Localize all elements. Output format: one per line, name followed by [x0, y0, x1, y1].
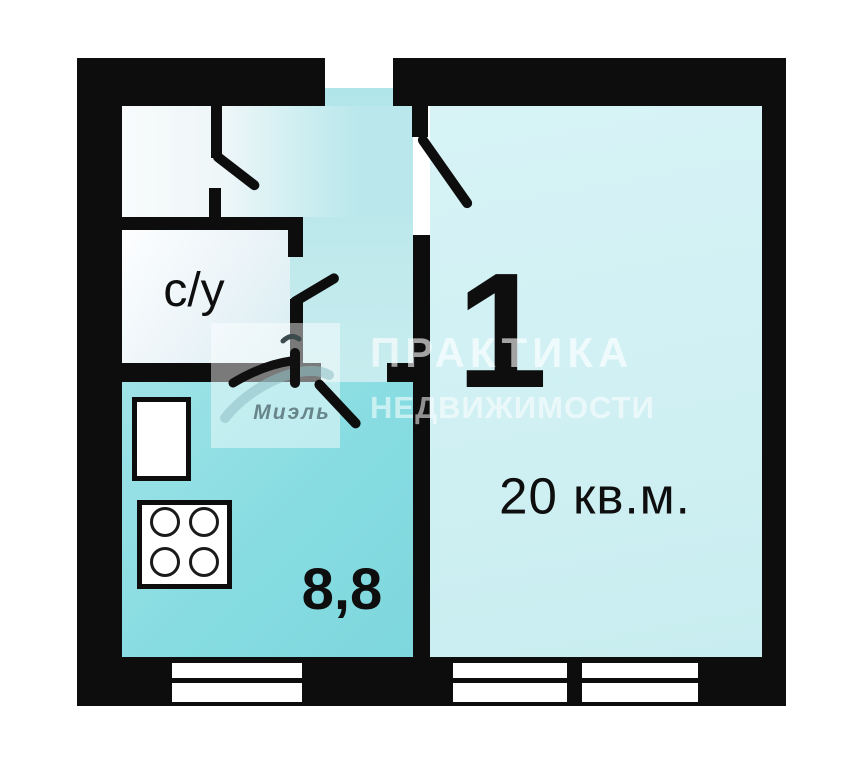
room-entry-hall: [122, 106, 413, 217]
watermark-line1: ПРАКТИКА: [370, 332, 633, 374]
living-room-area-label: 20 кв.м.: [499, 471, 691, 522]
floor-plan: Миэль с/у 1 20 кв.м. 8,8 ПРАКТИКА НЕДВИЖ…: [0, 0, 868, 768]
stove-burner: [150, 507, 180, 537]
watermark-agency-label: Миэль: [253, 401, 330, 425]
window-icon-kitchen: [172, 683, 302, 702]
stove-burner: [189, 547, 219, 577]
watermark-line2: НЕДВИЖИМОСТИ: [370, 392, 655, 423]
wall-bathroom-door-stub: [288, 217, 303, 257]
wall-left: [77, 58, 122, 706]
wall-right: [762, 58, 786, 706]
stove-burner: [150, 547, 180, 577]
window-icon-living-left: [453, 683, 567, 702]
wall-top-right: [393, 58, 786, 106]
wall-living-left: [413, 235, 430, 657]
kitchen-area-label: 8,8: [302, 561, 383, 619]
bathroom-label: с/у: [163, 267, 224, 315]
wall-bathroom-top: [122, 217, 303, 230]
window-icon-kitchen: [172, 663, 302, 678]
window-icon-living-right: [582, 663, 698, 678]
wall-closet-lower: [209, 188, 221, 219]
stove-icon: [137, 500, 232, 589]
wall-living-door-stub: [412, 106, 428, 137]
wall-closet-upper: [211, 106, 222, 158]
window-icon-living-left: [453, 663, 567, 678]
stove-burner: [189, 507, 219, 537]
fridge-icon: [132, 397, 191, 481]
window-icon-living-right: [582, 683, 698, 702]
